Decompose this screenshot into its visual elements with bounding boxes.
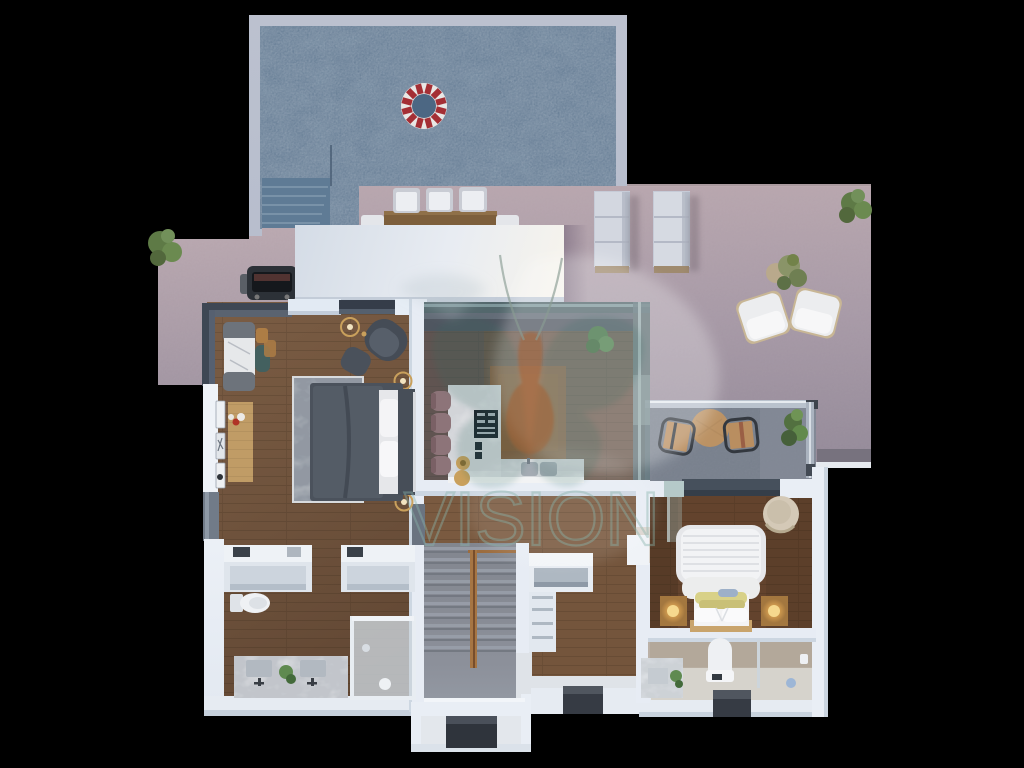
svg-text:VISION: VISION [404,477,666,562]
